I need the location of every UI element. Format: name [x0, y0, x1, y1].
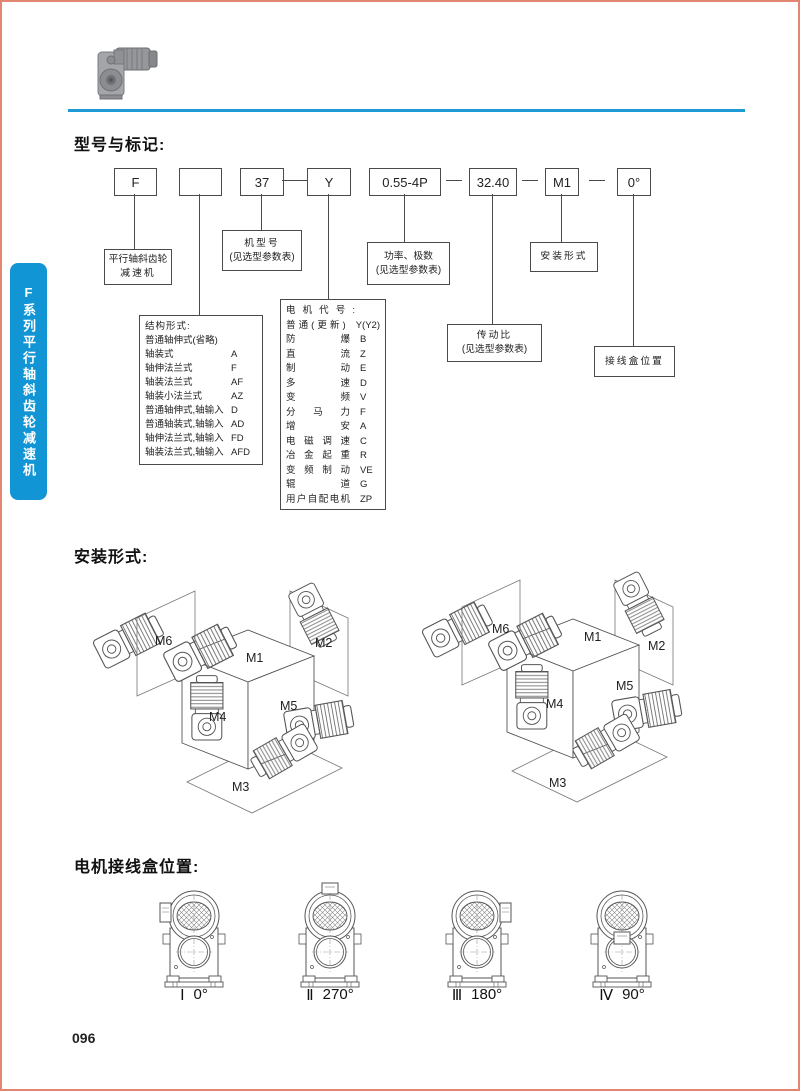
callout-line: 机型号: [244, 237, 279, 251]
mounting-label-m5: M5: [280, 699, 297, 713]
structure-item: 轴装小法兰式 AZ: [145, 390, 257, 404]
motor-item: 普通(更新) Y(Y2): [286, 319, 380, 334]
motor-code-list: 电机代号: 普通(更新) Y(Y2) 防爆 B 直流 Z: [280, 299, 386, 510]
motor-front-view: [159, 882, 229, 988]
terminal-position-label: Ⅲ 180°: [432, 986, 522, 1004]
motor-front-view: [442, 882, 512, 988]
motor-item-name: 制动: [286, 362, 350, 377]
motor-front-view: [587, 882, 657, 988]
connector: [199, 194, 200, 315]
mounting-label-m4: M4: [546, 697, 563, 711]
code-box-terminal: 0°: [617, 168, 651, 196]
motor-item-code: ZP: [360, 493, 372, 508]
structure-item-code: AFD: [231, 446, 257, 460]
motor-item: 用户自配电机 ZP: [286, 493, 380, 508]
connector: [589, 180, 605, 181]
motor-item-code: Y(Y2): [356, 319, 380, 334]
callout-reducer: 平行轴斜齿轮 减速机: [104, 249, 172, 285]
motor-item-code: A: [360, 420, 366, 435]
mounting-label-m2: M2: [315, 636, 332, 650]
terminal-view-180deg: Ⅲ 180°: [442, 882, 512, 993]
structure-item: 普通轴伸式(省略): [145, 334, 257, 348]
mounting-label-m3: M3: [549, 776, 566, 790]
structure-item-code: AD: [231, 418, 257, 432]
mounting-label-m6: M6: [492, 622, 509, 636]
structure-list-title: 结构形式:: [145, 320, 257, 334]
structure-item: 轴装法兰式 AF: [145, 376, 257, 390]
connector: [446, 180, 462, 181]
callout-line: (见选型参数表): [376, 264, 441, 278]
motor-item-name: 变频: [286, 391, 350, 406]
motor-item: 分马力 F: [286, 406, 380, 421]
position-angle: 180°: [471, 986, 502, 1004]
motor-item-code: V: [360, 391, 366, 406]
motor-item: 多速 D: [286, 377, 380, 392]
connector: [328, 194, 329, 299]
callout-line: (见选型参数表): [229, 251, 294, 265]
code-box-ratio: 32.40: [469, 168, 517, 196]
motor-list-title: 电机代号:: [286, 304, 356, 319]
motor-item-name: 多速: [286, 377, 350, 392]
position-numeral: Ⅲ: [452, 986, 462, 1004]
catalog-page: F系列平行轴斜齿轮减速机 型号与标记: F 37 Y 0.55-4P 32.40…: [0, 0, 800, 1091]
position-numeral: Ⅱ: [306, 986, 313, 1004]
structure-list-rows: 普通轴伸式(省略) 轴装式 A 轴伸法兰式 F 轴装法兰式 AF: [145, 334, 257, 460]
structure-item-code: FD: [231, 432, 257, 446]
terminal-position-label: Ⅱ 270°: [285, 986, 375, 1004]
motor-item: 电磁调速 C: [286, 435, 380, 450]
mounting-label-m1: M1: [584, 630, 601, 644]
motor-item-code: Z: [360, 348, 366, 363]
motor-item: 制动 E: [286, 362, 380, 377]
gearmotor-photo: [86, 38, 164, 104]
motor-item: 增安 A: [286, 420, 380, 435]
code-box-motor: Y: [307, 168, 351, 196]
connector: [261, 194, 262, 230]
callout-terminal: 接线盒位置: [594, 346, 675, 377]
terminal-view-90deg: Ⅳ 90°: [587, 882, 657, 993]
motor-item-name: 直流: [286, 348, 350, 363]
code-box-mounting: M1: [545, 168, 579, 196]
structure-item-name: 轴伸法兰式: [145, 362, 231, 376]
structure-item-code: [231, 334, 257, 348]
structure-item: 普通轴装式,轴输入 AD: [145, 418, 257, 432]
motor-item-name: 电磁调速: [286, 435, 350, 450]
mounting-label-m3: M3: [232, 780, 249, 794]
motor-item-name: 用户自配电机: [286, 493, 350, 508]
code-box-series: F: [114, 168, 157, 196]
callout-line: (见选型参数表): [462, 343, 527, 357]
motor-item: 辊道 G: [286, 478, 380, 493]
motor-item-code: D: [360, 377, 367, 392]
model-section-title: 型号与标记:: [74, 131, 165, 155]
callout-line: 安装形式: [540, 250, 587, 264]
position-numeral: Ⅳ: [599, 986, 613, 1004]
mounting-label-m6: M6: [155, 634, 172, 648]
motor-item-name: 冶金起重: [286, 449, 350, 464]
terminal-view-0deg: Ⅰ 0°: [159, 882, 229, 993]
structure-item-name: 普通轴伸式,轴输入: [145, 404, 231, 418]
motor-item-code: B: [360, 333, 366, 348]
motor-front-view: [295, 882, 365, 988]
structure-item: 普通轴伸式,轴输入 D: [145, 404, 257, 418]
structure-item-code: AF: [231, 376, 257, 390]
structure-item: 轴伸法兰式 F: [145, 362, 257, 376]
motor-item-code: VE: [360, 464, 373, 479]
connector: [134, 194, 135, 249]
structure-type-list: 结构形式: 普通轴伸式(省略) 轴装式 A 轴伸法兰式 F: [139, 315, 263, 465]
position-numeral: Ⅰ: [180, 986, 184, 1004]
connector: [633, 194, 634, 346]
mounting-iso-drawing: [87, 565, 359, 850]
callout-line: 功率、极数: [384, 250, 433, 264]
motor-item-code: C: [360, 435, 367, 450]
terminal-position-label: Ⅳ 90°: [577, 986, 667, 1004]
mounting-diagram-right: M6 M1 M2 M4 M5 M3: [422, 562, 702, 847]
mounting-label-m2: M2: [648, 639, 665, 653]
motor-item-code: E: [360, 362, 366, 377]
motor-item-code: G: [360, 478, 367, 493]
callout-line: 传动比: [477, 329, 512, 343]
header-rule: [68, 109, 745, 112]
motor-item: 直流 Z: [286, 348, 380, 363]
motor-item: 防爆 B: [286, 333, 380, 348]
structure-item-name: 轴装法兰式: [145, 376, 231, 390]
motor-list-rows: 普通(更新) Y(Y2) 防爆 B 直流 Z 制动 E: [286, 319, 380, 508]
structure-item-code: D: [231, 404, 257, 418]
structure-item: 轴装法兰式,轴输入 AFD: [145, 446, 257, 460]
motor-item-code: F: [360, 406, 366, 421]
motor-item-name: 普通(更新): [286, 319, 346, 334]
connector: [522, 180, 538, 181]
code-box-structure: [179, 168, 222, 196]
terminal-section-title: 电机接线盒位置:: [74, 853, 199, 877]
connector: [282, 180, 307, 181]
terminal-view-270deg: Ⅱ 270°: [295, 882, 365, 993]
structure-item-code: F: [231, 362, 257, 376]
structure-item-name: 轴装法兰式,轴输入: [145, 446, 231, 460]
structure-item: 轴伸法兰式,轴输入 FD: [145, 432, 257, 446]
terminal-position-label: Ⅰ 0°: [149, 986, 239, 1004]
connector: [561, 194, 562, 242]
connector: [404, 194, 405, 242]
structure-item-name: 普通轴伸式(省略): [145, 334, 231, 348]
sidebar-series-tab: F系列平行轴斜齿轮减速机: [10, 263, 47, 500]
position-angle: 90°: [622, 986, 645, 1004]
structure-item-name: 轴伸法兰式,轴输入: [145, 432, 231, 446]
callout-ratio: 传动比 (见选型参数表): [447, 324, 542, 362]
mounting-label-m1: M1: [246, 651, 263, 665]
callout-line: 减速机: [120, 267, 155, 281]
callout-power: 功率、极数 (见选型参数表): [367, 242, 450, 285]
motor-item-name: 变频制动: [286, 464, 350, 479]
callout-mounting: 安装形式: [530, 242, 598, 272]
structure-item-name: 轴装小法兰式: [145, 390, 231, 404]
motor-item: 变频制动 VE: [286, 464, 380, 479]
motor-item: 变频 V: [286, 391, 380, 406]
motor-item-name: 防爆: [286, 333, 350, 348]
motor-item-name: 辊道: [286, 478, 350, 493]
motor-item-name: 增安: [286, 420, 350, 435]
motor-item-name: 分马力: [286, 406, 350, 421]
motor-item: 冶金起重 R: [286, 449, 380, 464]
mounting-section-title: 安装形式:: [74, 543, 148, 567]
structure-item: 轴装式 A: [145, 348, 257, 362]
motor-item-code: R: [360, 449, 367, 464]
structure-item-name: 轴装式: [145, 348, 231, 362]
position-angle: 270°: [323, 986, 354, 1004]
connector: [492, 194, 493, 324]
code-box-frame: 37: [240, 168, 284, 196]
callout-line: 接线盒位置: [605, 355, 664, 369]
callout-frame: 机型号 (见选型参数表): [222, 230, 302, 271]
structure-item-name: 普通轴装式,轴输入: [145, 418, 231, 432]
callout-line: 平行轴斜齿轮: [109, 253, 168, 267]
mounting-label-m5: M5: [616, 679, 633, 693]
structure-item-code: A: [231, 348, 257, 362]
page-number: 096: [72, 1030, 95, 1046]
mounting-label-m4: M4: [209, 710, 226, 724]
mounting-diagram-left: M6 M1 M2 M4 M5 M3: [87, 565, 359, 850]
structure-item-code: AZ: [231, 390, 257, 404]
position-angle: 0°: [194, 986, 208, 1004]
code-box-power: 0.55-4P: [369, 168, 441, 196]
